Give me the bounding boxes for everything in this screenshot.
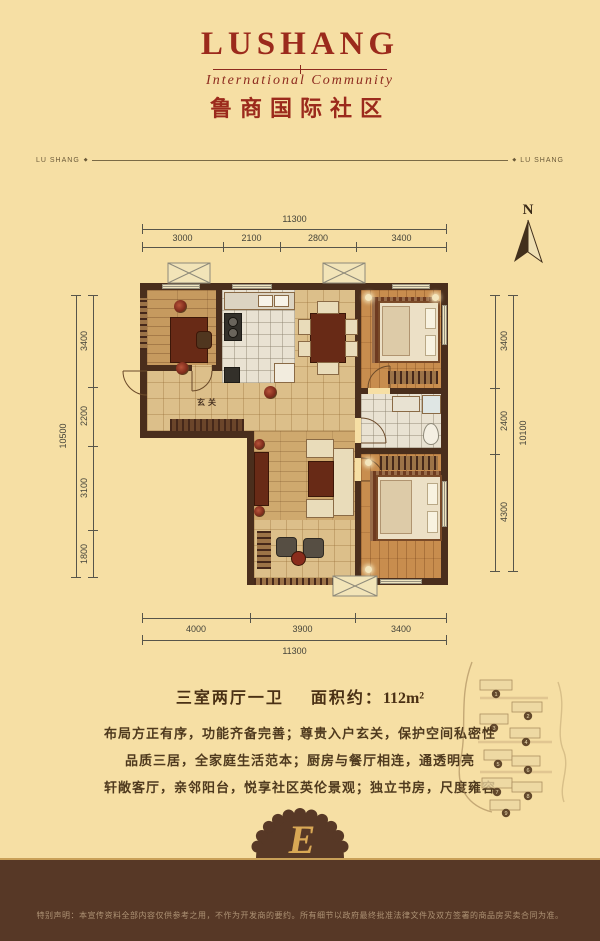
entry-hall-label: 玄关 [197, 397, 219, 408]
building-marker: 1 [494, 692, 497, 698]
dim-top-seg-4: 3400 [356, 232, 447, 244]
dim-right-total: 10100 [517, 413, 529, 453]
study-chair [196, 331, 212, 349]
tv-cabinet [254, 452, 269, 506]
lamp [365, 459, 372, 466]
dim-bottom-seg-3: 3400 [355, 623, 447, 635]
dim-line [142, 618, 447, 619]
dim-line [495, 295, 496, 572]
bedroom2-bed [378, 301, 440, 363]
bathroom-toilet [423, 423, 439, 445]
entry-bench [170, 419, 244, 431]
dim-left-total: 10500 [57, 416, 69, 456]
sofa-armchair [306, 439, 334, 458]
dim-right-seg-2: 2400 [498, 401, 510, 441]
coffee-table [308, 461, 334, 497]
site-map-sketch: 1 2 3 4 5 6 7 8 9 [450, 658, 592, 818]
building-marker: 2 [526, 714, 529, 720]
unit-rooms: 三室两厅一卫 [176, 690, 284, 707]
dim-left-seg-4: 1800 [78, 534, 90, 574]
lamp [365, 294, 372, 301]
building-marker: 5 [496, 762, 499, 768]
plant [176, 362, 189, 375]
plant [264, 386, 277, 399]
brand-logo-text: LUSHANG [0, 26, 600, 63]
master-wardrobe [380, 456, 438, 470]
dining-chair [345, 319, 358, 335]
dining-chair [317, 301, 339, 314]
brand-tagline: International Community [0, 73, 600, 89]
footer-band: 特别声明：本宣传资料全部内容仅供参考之用，不作为开发商的要约。所有细节以政府最终… [0, 858, 600, 941]
balcony-chair [303, 538, 324, 558]
dim-line [93, 295, 94, 578]
dim-left-seg-2: 2200 [78, 396, 90, 436]
unit-badge: E [245, 810, 355, 858]
ribbon-line [92, 160, 509, 161]
dim-top-seg-1: 3000 [142, 232, 223, 244]
dim-bottom-total: 11300 [142, 645, 447, 657]
kitchen-stove [224, 313, 242, 341]
kitchen-sink [274, 295, 289, 307]
ribbon-left-label: LU SHANG [36, 157, 80, 164]
plant [254, 506, 265, 517]
community-site-map: 1 2 3 4 5 6 7 8 9 [450, 658, 592, 818]
building-marker: 3 [492, 726, 495, 732]
balcony-planter [257, 531, 271, 569]
floor-plan: 玄关 [140, 283, 448, 585]
north-compass: N [506, 202, 550, 266]
dim-left-seg-3: 3100 [78, 468, 90, 508]
kitchen-sink [258, 295, 273, 307]
decorative-ribbon: LU SHANG ◆ ◆ LU SHANG [36, 154, 564, 166]
lamp [432, 294, 439, 301]
plant [174, 300, 187, 313]
sofa-main [333, 448, 354, 516]
dim-line [142, 640, 447, 641]
dim-top-total: 11300 [142, 213, 447, 225]
unit-area-label: 面积约： [311, 690, 383, 707]
building-marker: 9 [504, 811, 507, 817]
bedroom2-wardrobe [388, 371, 438, 384]
dim-bottom-seg-1: 4000 [142, 623, 250, 635]
plant [254, 439, 265, 450]
balcony-table [291, 551, 306, 566]
footer-disclaimer: 特别声明：本宣传资料全部内容仅供参考之用，不作为开发商的要约。所有细节以政府最终… [0, 910, 600, 921]
dim-line [513, 295, 514, 572]
north-arrow-icon [506, 218, 550, 264]
dim-line [142, 247, 447, 248]
building-marker: 8 [526, 794, 529, 800]
dining-table [310, 313, 346, 363]
badge-letter: E [288, 817, 316, 862]
bathroom-vanity [392, 396, 420, 412]
dim-left-seg-1: 3400 [78, 321, 90, 361]
ribbon-right-label: LU SHANG [520, 157, 564, 164]
dim-line [76, 295, 77, 578]
dim-top-seg-3: 2800 [280, 232, 356, 244]
flyer-page: LUSHANG International Community 鲁商国际社区 L… [0, 0, 600, 941]
kitchen-cabinet [224, 367, 240, 383]
kitchen-fridge [274, 363, 295, 383]
dining-chair [317, 362, 339, 375]
dim-right-seg-1: 3400 [498, 321, 510, 361]
dim-bottom-seg-2: 3900 [250, 623, 355, 635]
unit-area-value: 112m² [383, 690, 424, 707]
dining-chair [298, 341, 311, 357]
lamp [365, 566, 372, 573]
dim-top-seg-2: 2100 [223, 232, 280, 244]
master-bed [376, 475, 442, 541]
brand-chinese-name: 鲁商国际社区 [0, 91, 600, 123]
north-label: N [506, 202, 550, 218]
dining-chair [345, 341, 358, 357]
sofa-armchair [306, 499, 334, 518]
building-marker: 7 [495, 790, 498, 796]
badge-rosette-icon: E [245, 810, 355, 858]
building-marker: 6 [526, 768, 529, 774]
dim-right-seg-3: 4300 [498, 492, 510, 532]
building-marker: 4 [524, 740, 527, 746]
ribbon-left-diamond-icon: ◆ [84, 157, 88, 163]
ribbon-right-diamond-icon: ◆ [512, 157, 516, 163]
dining-chair [298, 319, 311, 335]
dim-line [142, 229, 447, 230]
bathroom-shower [422, 395, 441, 414]
brand-divider [213, 69, 387, 70]
